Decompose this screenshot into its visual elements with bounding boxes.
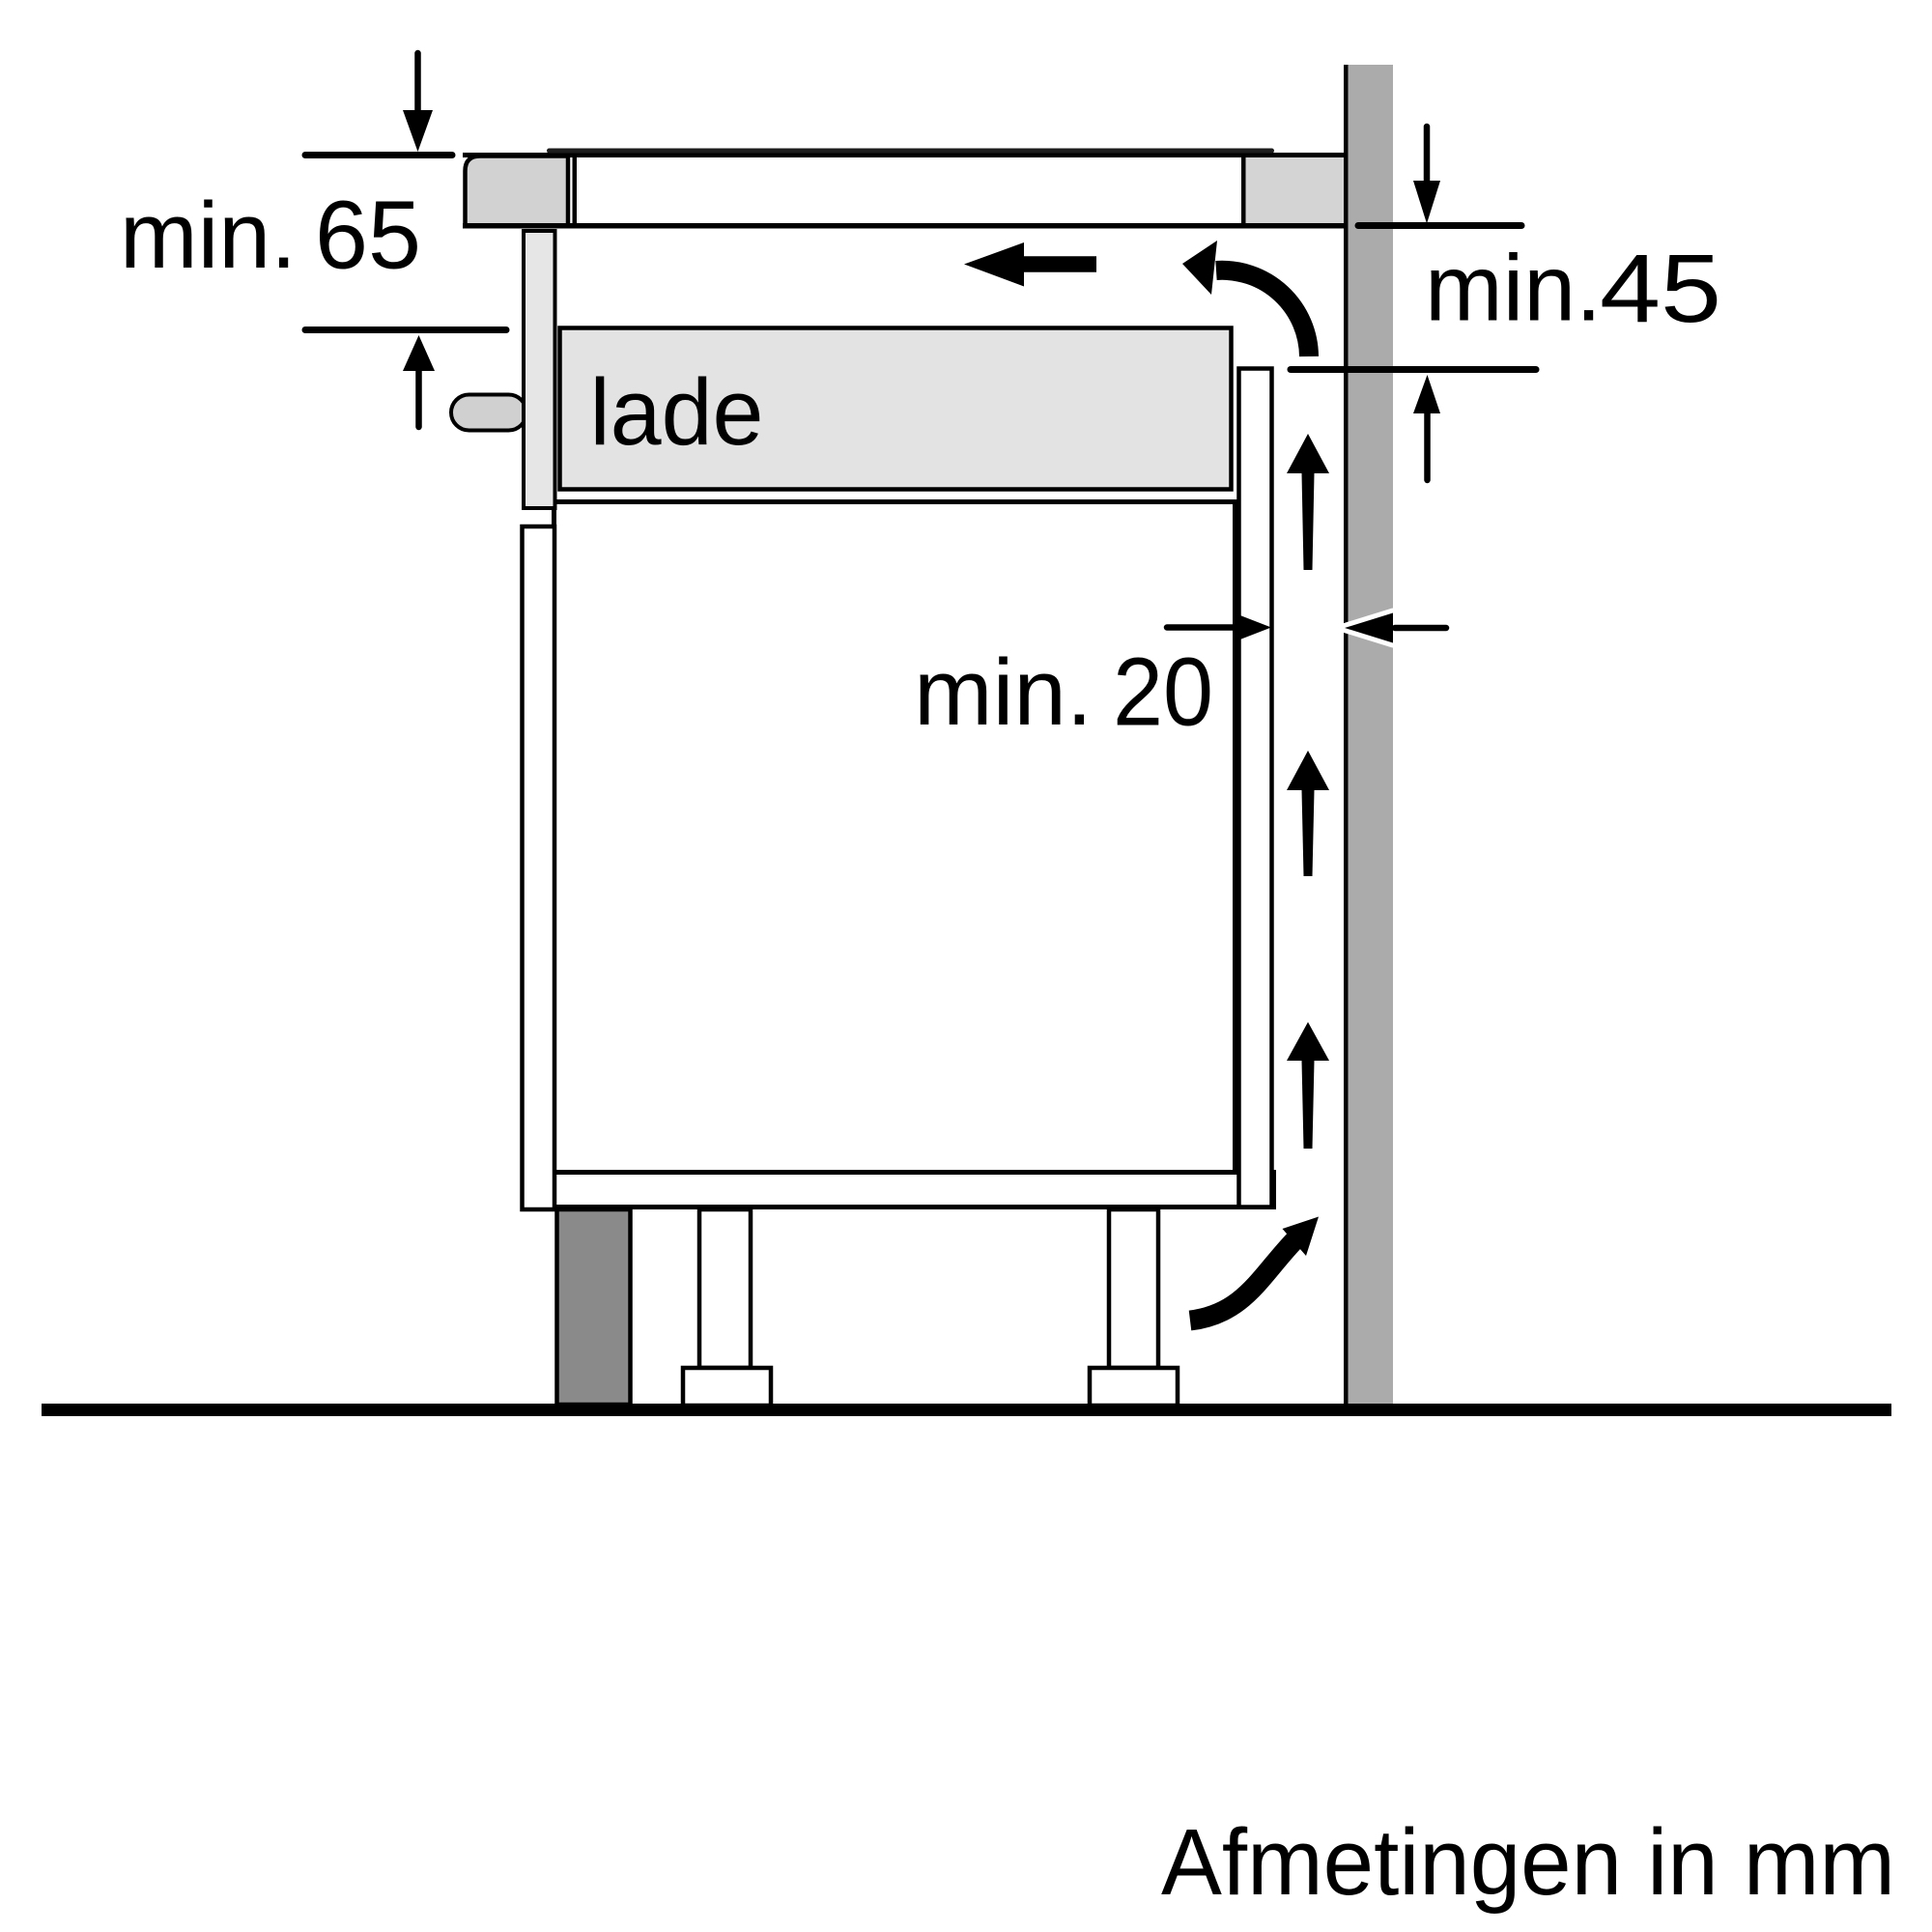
svg-text:min.: min.	[120, 183, 297, 288]
svg-text:20: 20	[1113, 639, 1213, 747]
svg-text:min.: min.	[1425, 236, 1602, 341]
svg-text:Afmetingen in mm: Afmetingen in mm	[1161, 1809, 1895, 1915]
svg-text:lade: lade	[590, 359, 764, 465]
svg-text:min.: min.	[914, 639, 1093, 745]
svg-text:45: 45	[1600, 235, 1721, 343]
svg-text:65: 65	[315, 182, 421, 290]
